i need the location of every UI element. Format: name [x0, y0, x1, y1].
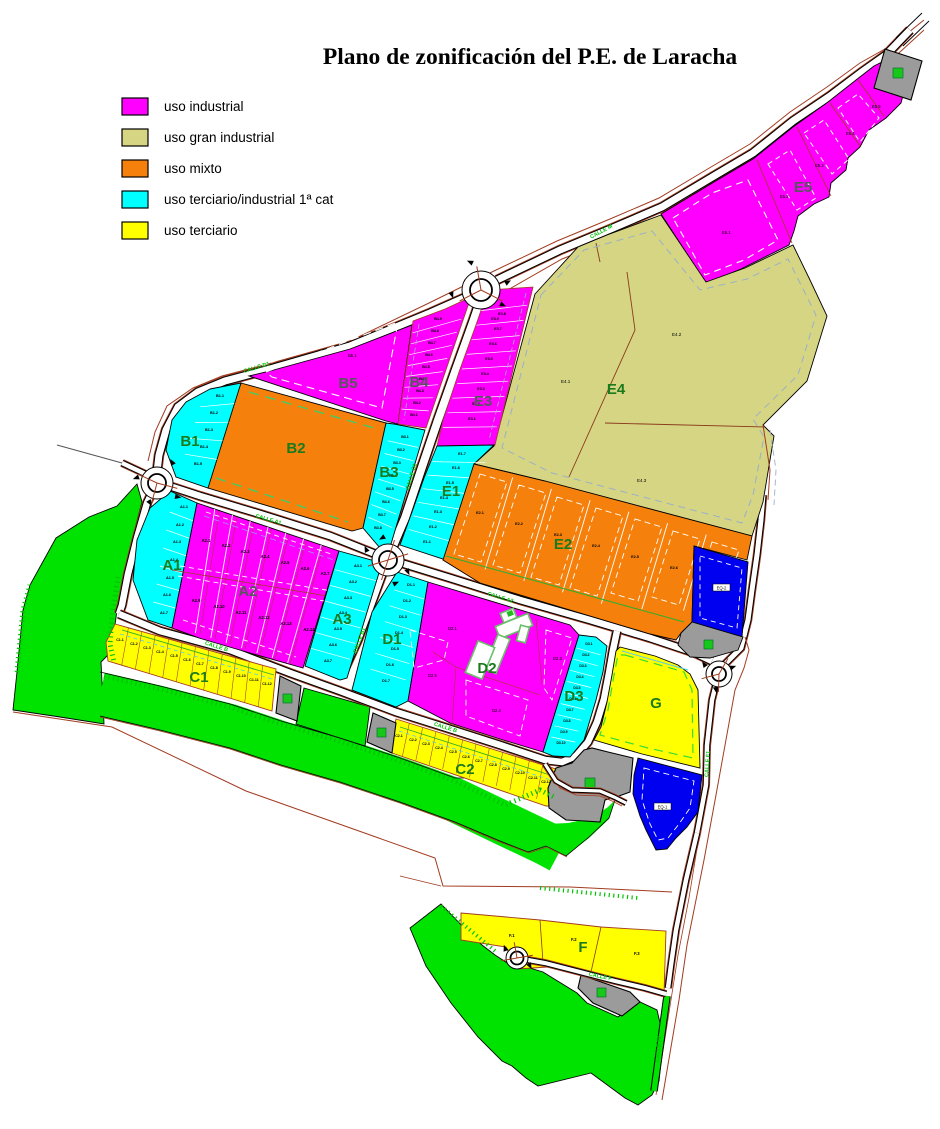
svg-text:E1.6: E1.6	[452, 466, 460, 470]
svg-text:E4: E4	[607, 381, 626, 398]
svg-text:C1.2: C1.2	[130, 642, 138, 646]
svg-text:A3: A3	[332, 611, 351, 628]
svg-text:EQ-1: EQ-1	[658, 805, 668, 810]
svg-text:F.1: F.1	[509, 933, 515, 938]
svg-text:E4.2: E4.2	[672, 332, 682, 337]
svg-text:B1.1: B1.1	[216, 394, 224, 398]
svg-text:A3.3: A3.3	[344, 596, 352, 600]
svg-text:A2.6: A2.6	[301, 566, 311, 571]
svg-text:B1.5: B1.5	[194, 462, 202, 466]
svg-text:E1.3: E1.3	[434, 510, 442, 514]
svg-text:D3: D3	[564, 688, 583, 705]
svg-text:uso terciario/industrial 1ª ca: uso terciario/industrial 1ª cat	[164, 192, 334, 207]
svg-text:E2.5: E2.5	[631, 555, 639, 559]
svg-text:D1: D1	[382, 631, 401, 648]
svg-text:EQ-2: EQ-2	[717, 586, 727, 591]
svg-text:B4.6: B4.6	[425, 353, 433, 357]
svg-text:C1.10: C1.10	[236, 674, 246, 678]
svg-text:E5.4: E5.4	[846, 131, 855, 136]
svg-text:D2: D2	[477, 660, 496, 677]
svg-text:E4.1: E4.1	[561, 379, 571, 384]
svg-text:E3.4: E3.4	[481, 372, 488, 376]
svg-text:C2: C2	[455, 761, 474, 778]
svg-text:E1.1: E1.1	[423, 540, 431, 544]
svg-text:C2.4: C2.4	[435, 746, 443, 750]
svg-text:C2.9: C2.9	[502, 767, 510, 771]
svg-text:C2.6: C2.6	[462, 755, 470, 759]
svg-text:A2.11: A2.11	[236, 610, 248, 615]
svg-text:E2.2: E2.2	[515, 522, 523, 526]
svg-text:D1.1: D1.1	[407, 583, 415, 587]
svg-text:B4.5: B4.5	[422, 365, 430, 369]
svg-text:D2.5: D2.5	[428, 673, 438, 678]
svg-text:E3.9: E3.9	[491, 317, 498, 321]
svg-text:C1.3: C1.3	[143, 646, 151, 650]
svg-text:B4.8: B4.8	[431, 329, 439, 333]
svg-text:A3.1: A3.1	[354, 564, 362, 568]
svg-text:E5.1: E5.1	[722, 230, 731, 235]
svg-text:D1.3: D1.3	[399, 615, 407, 619]
svg-text:D2.3: D2.3	[553, 656, 563, 661]
svg-text:B1.4: B1.4	[200, 445, 209, 449]
svg-text:B3.1: B3.1	[401, 435, 409, 439]
svg-text:D3.10: D3.10	[556, 741, 565, 745]
svg-text:A1.1: A1.1	[180, 505, 188, 509]
svg-text:uso terciario: uso terciario	[164, 223, 238, 238]
svg-text:A1.5: A1.5	[166, 576, 174, 580]
svg-text:B1.2: B1.2	[210, 411, 218, 415]
svg-text:E1: E1	[442, 483, 460, 500]
svg-text:A1.2: A1.2	[176, 523, 184, 527]
svg-text:B1: B1	[180, 433, 199, 450]
svg-text:uso mixto: uso mixto	[164, 161, 222, 176]
svg-text:C2.8: C2.8	[489, 763, 497, 767]
svg-text:E5: E5	[794, 179, 812, 196]
svg-text:D1.6: D1.6	[386, 663, 394, 667]
svg-text:E3.7: E3.7	[494, 327, 501, 331]
svg-text:C1.1: C1.1	[116, 638, 124, 642]
svg-text:D1.2: D1.2	[403, 599, 411, 603]
svg-text:C1.5: C1.5	[170, 654, 178, 658]
svg-text:E2.4: E2.4	[592, 544, 601, 548]
svg-text:C1.7: C1.7	[196, 662, 204, 666]
svg-text:B4.1: B4.1	[410, 413, 418, 417]
svg-text:A2.3: A2.3	[241, 549, 251, 554]
svg-text:A2.13: A2.13	[280, 621, 292, 626]
svg-text:E2.6: E2.6	[670, 566, 678, 570]
svg-text:C2.10: C2.10	[515, 771, 525, 775]
svg-text:C1.11: C1.11	[249, 678, 258, 682]
svg-text:E1.7: E1.7	[458, 452, 466, 456]
svg-text:C2.7: C2.7	[475, 759, 483, 763]
svg-text:B5: B5	[338, 375, 357, 392]
svg-text:D3.9: D3.9	[560, 730, 567, 734]
svg-text:A3.6: A3.6	[329, 643, 337, 647]
svg-text:C1.8: C1.8	[210, 666, 218, 670]
svg-text:A2.9: A2.9	[192, 598, 202, 603]
svg-text:A1.6: A1.6	[163, 593, 171, 597]
svg-text:G: G	[650, 695, 662, 712]
svg-text:E3.8: E3.8	[498, 312, 505, 316]
svg-text:C2.3: C2.3	[422, 742, 430, 746]
svg-text:uso industrial: uso industrial	[164, 99, 244, 114]
svg-text:F.2: F.2	[571, 937, 577, 942]
svg-text:C1.12: C1.12	[262, 682, 272, 686]
svg-text:E3.6: E3.6	[489, 342, 496, 346]
svg-text:B3.8: B3.8	[374, 526, 382, 530]
svg-text:F: F	[578, 939, 587, 956]
svg-text:B4.2: B4.2	[413, 401, 421, 405]
svg-text:D2.1: D2.1	[448, 626, 458, 631]
svg-text:D3.7: D3.7	[566, 708, 573, 712]
svg-text:A2.14: A2.14	[303, 627, 315, 632]
svg-text:A2.12: A2.12	[258, 615, 270, 620]
svg-text:B1.3: B1.3	[205, 428, 213, 432]
svg-text:A1.7: A1.7	[160, 611, 168, 615]
svg-text:B3.7: B3.7	[378, 513, 386, 517]
svg-text:A2.5: A2.5	[281, 560, 291, 565]
svg-text:D3.2: D3.2	[582, 653, 589, 657]
svg-text:E2: E2	[554, 536, 572, 553]
svg-text:C2.5: C2.5	[449, 750, 457, 754]
svg-text:A1.3: A1.3	[173, 540, 181, 544]
svg-text:B3.2: B3.2	[397, 448, 405, 452]
svg-text:E3.3: E3.3	[477, 387, 484, 391]
svg-text:D1.7: D1.7	[382, 679, 390, 683]
svg-text:A1: A1	[162, 557, 181, 574]
svg-text:B4.9: B4.9	[434, 317, 442, 321]
svg-text:E3: E3	[474, 393, 492, 410]
svg-text:A2.2: A2.2	[222, 543, 232, 548]
svg-text:Plano de zonificación del P.E.: Plano de zonificación del P.E. de Larach…	[323, 44, 738, 70]
svg-text:D3.8: D3.8	[563, 719, 570, 723]
svg-text:B4: B4	[409, 374, 429, 391]
svg-text:B2: B2	[286, 440, 305, 457]
svg-text:A2: A2	[238, 583, 257, 600]
svg-text:D3.1: D3.1	[585, 642, 592, 646]
svg-text:D3.3: D3.3	[579, 664, 586, 668]
svg-text:A2.4: A2.4	[261, 554, 271, 559]
svg-text:E5.5: E5.5	[872, 104, 881, 109]
svg-text:E5.3: E5.3	[815, 163, 824, 168]
svg-text:D3.4: D3.4	[576, 675, 583, 679]
svg-text:C2.1: C2.1	[395, 734, 403, 738]
svg-text:uso gran industrial: uso gran industrial	[164, 130, 274, 145]
svg-text:A2.10: A2.10	[213, 604, 225, 609]
svg-text:C1.6: C1.6	[183, 658, 191, 662]
svg-text:A3.7: A3.7	[324, 659, 332, 663]
svg-text:E4.3: E4.3	[637, 478, 647, 483]
svg-text:E2.1: E2.1	[476, 511, 484, 515]
svg-text:C1: C1	[189, 669, 208, 686]
svg-text:B4.7: B4.7	[428, 341, 436, 345]
svg-text:D2.4: D2.4	[492, 708, 502, 713]
svg-text:B3: B3	[379, 464, 398, 481]
svg-text:B3.6: B3.6	[382, 500, 390, 504]
svg-text:E3.5: E3.5	[485, 357, 492, 361]
svg-text:B5.1: B5.1	[348, 353, 357, 358]
svg-text:C2.11: C2.11	[528, 776, 537, 780]
svg-text:A2.7: A2.7	[321, 571, 331, 576]
svg-text:C2.2: C2.2	[409, 738, 417, 742]
svg-text:C1.9: C1.9	[223, 670, 231, 674]
svg-text:E3.1: E3.1	[468, 417, 475, 421]
svg-text:B3.5: B3.5	[386, 487, 394, 491]
svg-text:E5.2: E5.2	[780, 194, 789, 199]
svg-text:A2.1: A2.1	[202, 538, 212, 543]
svg-text:A3.2: A3.2	[349, 580, 357, 584]
svg-text:C1.4: C1.4	[156, 650, 164, 654]
svg-text:E1.2: E1.2	[429, 525, 437, 529]
svg-text:F.3: F.3	[634, 951, 640, 956]
